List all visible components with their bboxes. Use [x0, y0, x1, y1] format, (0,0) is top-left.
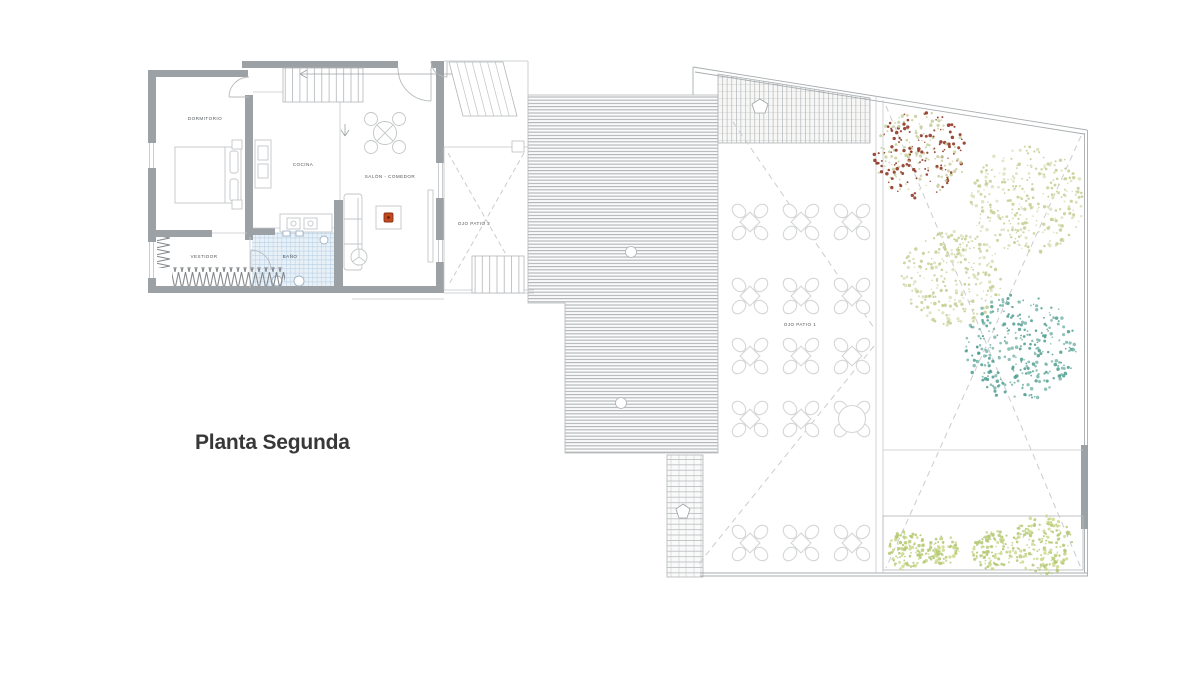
room-label-salon: SALÓN - COMEDOR	[365, 173, 416, 179]
patio-table-set	[781, 523, 822, 564]
planter-shrub-4	[1011, 514, 1073, 575]
planter-shrub-1	[888, 530, 929, 571]
patio-table-set	[781, 276, 822, 317]
room-label-cocina: COCINA	[293, 162, 314, 167]
tree-red	[873, 111, 966, 199]
roof-vent	[616, 398, 627, 409]
tree-olive-top	[970, 145, 1084, 253]
floor-plan-canvas: Planta Segunda	[0, 0, 1200, 675]
room-label-vestidor: VESTIDOR	[190, 254, 217, 259]
patio-table-set	[730, 336, 771, 377]
table	[839, 406, 866, 433]
label-ojo-patio-1: OJO PATIO 1	[784, 322, 817, 327]
fan-symbol	[351, 249, 367, 265]
terrace-tables	[730, 202, 873, 564]
patio-table-set	[730, 202, 771, 243]
roof-vent	[626, 247, 637, 258]
wall-shelf	[428, 190, 433, 262]
tree-olive-mid	[901, 230, 1002, 327]
patio-table-set	[832, 523, 873, 564]
stairs-main	[283, 68, 462, 136]
patio-table-set	[730, 523, 771, 564]
room-label-dormitorio: DORMITORIO	[188, 116, 222, 121]
stairs-secondary	[449, 62, 517, 116]
bed	[175, 140, 242, 209]
planter-shrub-3	[971, 530, 1015, 570]
patio-table-set	[781, 336, 822, 377]
patio-table-set	[832, 399, 873, 440]
patio-table-set	[730, 399, 771, 440]
console-table	[376, 206, 401, 229]
patio-table-set	[832, 202, 873, 243]
patio-table-set	[781, 202, 822, 243]
apartment: DORMITORIO COCINA SALÓN - COMEDOR VESTID…	[146, 61, 517, 299]
room-label-bano: BAÑO	[283, 253, 298, 259]
patio-table-set	[781, 399, 822, 440]
page-title: Planta Segunda	[195, 431, 350, 455]
label-ojo-patio-2: OJO PATIO 2	[458, 221, 491, 226]
tree-teal	[965, 294, 1077, 399]
dining-table-set	[365, 113, 406, 154]
floor-plan-svg: DORMITORIO COCINA SALÓN - COMEDOR VESTID…	[0, 0, 1200, 675]
kitchen-counter	[255, 140, 332, 232]
patio-table-set	[730, 276, 771, 317]
patio-table-set	[832, 276, 873, 317]
garden-trees	[873, 111, 1084, 575]
planter-shrub-2	[927, 535, 959, 565]
patio-stairs	[472, 256, 524, 293]
